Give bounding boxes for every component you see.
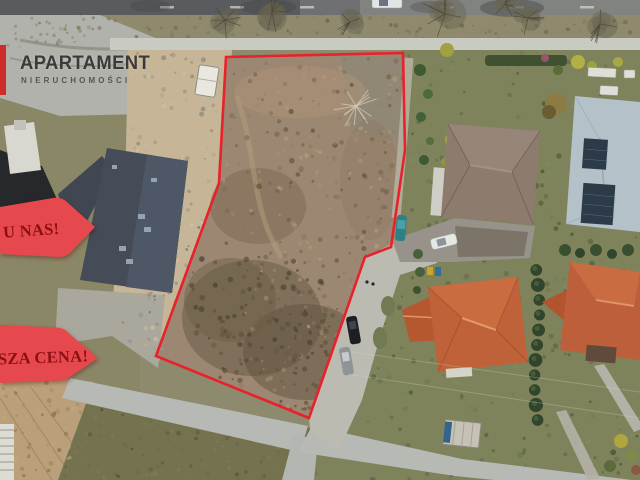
- promo-banner-top: U NAS!: [0, 192, 100, 262]
- aerial-photo: APARTAMENT NIERUCHOMOŚCI U NAS! SZA CENA…: [0, 0, 640, 480]
- white-roof-structure: [0, 424, 14, 480]
- promo-banner-top-label: U NAS!: [2, 219, 60, 242]
- brand-name: APARTAMENT: [20, 53, 150, 75]
- solar-panels: [582, 138, 608, 170]
- hedge-row: [485, 55, 567, 66]
- brand-subtitle: NIERUCHOMOŚCI: [21, 76, 130, 85]
- car-on-road: [372, 0, 402, 8]
- brand-logo: APARTAMENT NIERUCHOMOŚCI: [0, 45, 170, 97]
- garden-shed: [443, 419, 481, 448]
- white-trailer: [195, 65, 219, 98]
- brand-logo-square: [0, 45, 6, 95]
- promo-banner-bottom-label: SZA CENA!: [0, 346, 89, 368]
- solar-roof-house: [566, 96, 640, 232]
- sidewalk: [110, 38, 640, 50]
- promo-banner-bottom: SZA CENA!: [0, 317, 105, 387]
